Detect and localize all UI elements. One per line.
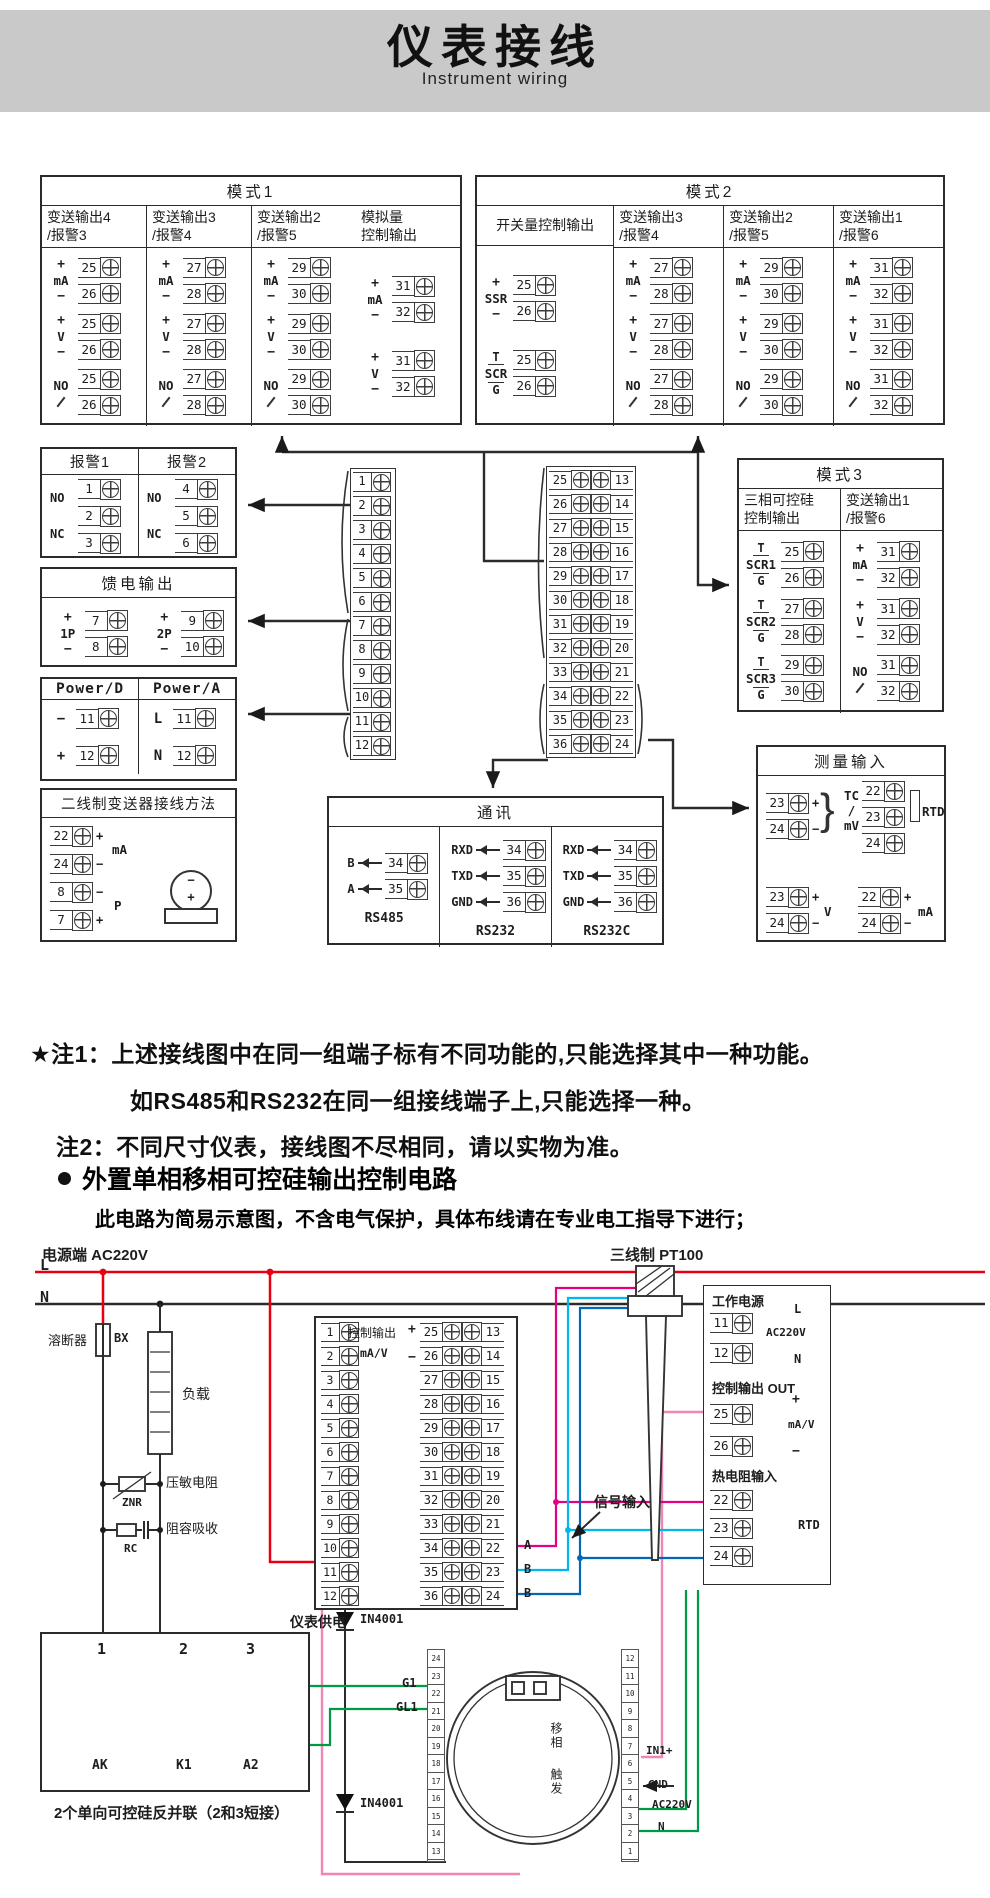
screw-icon — [788, 819, 809, 840]
screw-icon — [339, 1490, 359, 1510]
rs485-label: RS485 — [365, 911, 404, 926]
screw-icon — [462, 1418, 482, 1438]
comm-row: GND36 — [556, 889, 657, 915]
comm-row: GND36 — [445, 889, 546, 915]
screw-icon — [442, 1370, 462, 1390]
screw-icon — [732, 1518, 753, 1539]
screw-icon — [414, 376, 435, 397]
terminal: 28 — [183, 392, 226, 418]
terminal: 28 — [183, 281, 226, 307]
mode1-analog-column: 模拟量控制输出 +mA− 31 32 +V− 31 32 — [356, 206, 460, 426]
screw-icon — [339, 1394, 359, 1414]
terminal: 35 — [385, 876, 428, 902]
terminal: 32 — [877, 565, 920, 591]
terminal: 8 — [85, 634, 128, 660]
wire-tag-b2: B — [524, 1586, 531, 1600]
terminal: 11 — [321, 1560, 359, 1584]
screw-icon — [892, 313, 913, 334]
terminal: 32 — [870, 281, 913, 307]
column-header: 变送输出3/报警4 — [614, 206, 723, 248]
terminal: 28 — [650, 281, 693, 307]
screw-icon — [732, 1343, 753, 1364]
screw-icon — [414, 302, 435, 323]
screw-icon — [672, 257, 693, 278]
screw-icon — [205, 313, 226, 334]
note-2: 注2：不同尺寸仪表，接线图不尽相同，请以实物为准。 — [56, 1128, 633, 1162]
trigger-terminal: 14 — [428, 1825, 444, 1843]
screw-icon — [636, 892, 657, 913]
screw-icon — [339, 1418, 359, 1438]
screw-icon — [571, 566, 591, 586]
terminal: 25 — [513, 347, 556, 373]
screw-icon — [899, 624, 920, 645]
diode1-label: IN4001 — [360, 1612, 403, 1626]
terminal: 4 — [175, 476, 218, 503]
screw-icon — [414, 276, 435, 297]
terminal: 7+ — [50, 906, 103, 934]
ctrl-output-label: 控制输出 — [348, 1324, 396, 1341]
screw-icon — [310, 257, 331, 278]
ma-output-group: +mA− 27 28 — [151, 255, 251, 307]
relay-contact-icon — [739, 396, 748, 407]
terminal: 8 — [353, 638, 393, 662]
trigger-terminal: 15 — [428, 1808, 444, 1826]
ac220v-label: AC220V — [766, 1326, 806, 1339]
comm-box: 通讯 B34 A35 RS485 RXD34 TXD35 GND36 RS232… — [327, 796, 664, 945]
trigger-n-label: N — [658, 1820, 665, 1833]
screw-icon — [371, 472, 391, 492]
right-panel: 工作电源 11 12 L AC220V N 控制输出 OUT 25 26 + m… — [703, 1285, 831, 1585]
terminal: 29 — [288, 255, 331, 281]
measure-input-title: 测量输入 — [758, 747, 944, 776]
comm-title: 通讯 — [329, 798, 662, 827]
terminal-row: 3119 — [420, 1464, 504, 1488]
terminal: 9 — [321, 1512, 359, 1536]
trigger-terminal: 12 — [622, 1650, 638, 1668]
terminal: 23 — [862, 804, 905, 830]
screw-icon — [899, 567, 920, 588]
screw-icon — [899, 541, 920, 562]
screw-icon — [591, 590, 611, 610]
screw-icon — [803, 655, 824, 676]
brace: } — [820, 786, 835, 834]
relay-output-group: NO 29 30 — [256, 366, 356, 418]
terminal: 26 — [781, 565, 824, 591]
screw-icon — [782, 369, 803, 390]
terminal: 31 — [877, 652, 920, 678]
section2-note: 此电路为简易示意图，不含电气保护，具体布线请在专业电工指导下进行； — [95, 1203, 755, 1232]
terminal: 34 — [614, 837, 657, 863]
screw-icon — [339, 1538, 359, 1558]
feed-output-box: 馈电输出 +1P− 7 8 +2P− 9 10 — [40, 567, 237, 667]
screw-icon — [100, 506, 121, 527]
trigger-terminal: 22 — [428, 1685, 444, 1703]
mode1-column: 变送输出3/报警4 +mA− 27 28 +V− 27 28 — [147, 206, 252, 426]
screw-icon — [203, 636, 224, 657]
screw-icon — [462, 1394, 482, 1414]
trigger-terminal: 10 — [622, 1685, 638, 1703]
terminal: 30 — [760, 337, 803, 363]
varistor-label: 压敏电阻 — [166, 1472, 218, 1491]
terminal: 28 — [183, 337, 226, 363]
ma-output-group: +mA− 31 32 — [360, 273, 460, 325]
power-box: Power/DPower/A −11 +12 L11 N12 — [40, 677, 237, 781]
relay-contact-icon — [267, 396, 276, 407]
terminal: 11 — [353, 710, 393, 734]
scr-module-box — [40, 1632, 310, 1792]
terminal: 26 — [513, 373, 556, 399]
screw-icon — [339, 1442, 359, 1462]
transmitter-base — [164, 908, 218, 924]
screw-icon — [442, 1394, 462, 1414]
screw-icon — [205, 283, 226, 304]
screw-icon — [899, 655, 920, 676]
terminal: 28 — [781, 622, 824, 648]
relay-contact-icon — [856, 682, 865, 693]
column-header: 模拟量控制输出 — [356, 206, 460, 248]
terminal-row: 2715 — [549, 516, 633, 540]
terminal: 27 — [650, 311, 693, 337]
bottom-terminal-strip: 1 2 3 4 5 6 7 8 9 10 11 12 2513 2614 271… — [314, 1316, 518, 1610]
v-output-group: +V− 31 32 — [845, 596, 942, 648]
screw-icon — [899, 681, 920, 702]
feed-output-title: 馈电输出 — [42, 569, 235, 598]
screw-icon — [407, 853, 428, 874]
scr-terminal-label: A2 — [243, 1758, 259, 1773]
screw-icon — [571, 638, 591, 658]
arrow-left-icon — [476, 849, 500, 851]
trigger-terminal: 13 — [428, 1843, 444, 1861]
mode2-title: 模式2 — [477, 177, 943, 206]
transmitter-icon: −+ — [170, 870, 212, 912]
v-output-group: +V− 29 30 — [256, 311, 356, 363]
screw-icon — [571, 494, 591, 514]
scr-terminal-num: 1 — [97, 1640, 106, 1658]
screw-icon — [462, 1442, 482, 1462]
terminal: 27 — [650, 255, 693, 281]
terminal: 34 — [385, 850, 428, 876]
mode1-title: 模式1 — [42, 177, 460, 206]
terminal: 27 — [183, 366, 226, 392]
terminal-row: 3422 — [549, 684, 633, 708]
v-label: V — [824, 904, 832, 919]
screw-icon — [803, 681, 824, 702]
trigger-vlabel-1: 移相 — [548, 1722, 565, 1750]
terminal: 4 — [321, 1392, 359, 1416]
trigger-terminal: 4 — [622, 1790, 638, 1808]
scr-output-group: TSCR3G 29 30 — [743, 652, 840, 704]
screw-icon — [371, 688, 391, 708]
terminal: 11 — [173, 706, 216, 732]
trigger-vlabel-2: 触发 — [548, 1768, 565, 1796]
screw-icon — [100, 395, 121, 416]
scr-output-group: TSCRG 25 26 — [481, 347, 613, 399]
terminal: 7 — [85, 608, 128, 634]
arrow-left-icon — [587, 901, 611, 903]
relay-output-group: NO 25 26 — [46, 366, 146, 418]
screw-icon — [339, 1370, 359, 1390]
screw-icon — [72, 910, 93, 931]
mode2-box: 模式2 开关量控制输出 +SSR− 25 26 TSCRG 25 26 — [475, 175, 945, 425]
terminal-row: 3220 — [420, 1488, 504, 1512]
mode3-scr-column: 三相可控硅控制输出 TSCR1G 25 26 TSCR2G 27 28 — [739, 489, 841, 713]
screw-icon — [442, 1346, 462, 1366]
terminal: 24− — [50, 850, 103, 878]
trigger-terminal: 20 — [428, 1720, 444, 1738]
screw-icon — [339, 1562, 359, 1582]
screw-icon — [339, 1514, 359, 1534]
v-output-group: +V− 27 28 — [151, 311, 251, 363]
screw-icon — [339, 1586, 359, 1606]
arrow-left-icon — [358, 862, 382, 864]
signal-input-label: 信号输入 — [594, 1492, 650, 1512]
terminal-row: 3018 — [549, 588, 633, 612]
comm-row: RXD34 — [445, 837, 546, 863]
rs232c-group: RXD34 TXD35 GND36 RS232C — [552, 827, 662, 947]
screw-icon — [892, 339, 913, 360]
trigger-ac-label: AC220V — [652, 1798, 692, 1811]
screw-icon — [100, 479, 121, 500]
ma-label: mA — [112, 842, 127, 857]
terminal: 31 — [877, 539, 920, 565]
ssr-output-group: +SSR− 25 26 — [481, 272, 613, 324]
rs232-label: RS232 — [476, 924, 515, 939]
screw-icon — [571, 470, 591, 490]
terminal: 32 — [877, 678, 920, 704]
trigger-terminal: 23 — [428, 1668, 444, 1686]
terminal-row: 3018 — [420, 1440, 504, 1464]
terminal: 3 — [353, 518, 393, 542]
screw-icon — [525, 892, 546, 913]
rc-label: 阻容吸收 — [166, 1518, 218, 1537]
wire-tag-a: A — [524, 1538, 531, 1552]
terminal: 25 — [78, 366, 121, 392]
screw-icon — [414, 350, 435, 371]
terminal: 6 — [321, 1440, 359, 1464]
screw-icon — [205, 257, 226, 278]
screw-icon — [462, 1514, 482, 1534]
screw-icon — [672, 283, 693, 304]
relay-contact-icon — [629, 396, 638, 407]
v-output-group: +V− 29 30 — [728, 311, 833, 363]
screw-icon — [571, 734, 591, 754]
terminal-row: 2513 — [420, 1320, 504, 1344]
screw-icon — [462, 1370, 482, 1390]
terminal: 23+ — [766, 790, 819, 816]
terminal: 30 — [760, 281, 803, 307]
arrow-left-icon — [587, 875, 611, 877]
alarm2-group: NONC 4 5 6 — [139, 475, 235, 557]
terminal: 27 — [183, 311, 226, 337]
terminal: 36 — [614, 889, 657, 915]
screw-icon — [462, 1322, 482, 1342]
mode1-column: 变送输出4/报警3 +mA− 25 26 +V− 25 26 — [42, 206, 147, 426]
terminal: 3 — [321, 1368, 359, 1392]
diode2-label: IN4001 — [360, 1796, 403, 1810]
screw-icon — [782, 257, 803, 278]
power-d-title: Power/D — [42, 679, 139, 699]
terminal: 10 — [181, 634, 224, 660]
mode3-transmit-column: 变送输出1/报警6 +mA− 31 32 +V− 31 32 — [841, 489, 942, 713]
trigger-terminal: 6 — [622, 1755, 638, 1773]
screw-icon — [892, 395, 913, 416]
terminal: 7 — [321, 1464, 359, 1488]
screw-icon — [98, 708, 119, 729]
screw-icon — [571, 686, 591, 706]
screw-icon — [525, 840, 546, 861]
relay-output-group: NO 31 32 — [838, 366, 943, 418]
terminal: 35 — [503, 863, 546, 889]
screw-icon — [371, 616, 391, 636]
plus-sign: + — [408, 1322, 416, 1337]
terminal: 30 — [760, 392, 803, 418]
note-1: ★注1：上述接线图中在同一组端子标有不同功能的,只能选择其中一种功能。 — [30, 1035, 823, 1069]
column-header: 变送输出2/报警5 — [724, 206, 833, 248]
terminal: 32 — [870, 392, 913, 418]
comm-row: A35 — [341, 876, 428, 902]
terminal: 4 — [353, 542, 393, 566]
terminal: 24− — [766, 816, 819, 842]
alarm2-title: 报警2 — [139, 449, 235, 474]
terminal-row: 3422 — [420, 1536, 504, 1560]
screw-icon — [591, 662, 611, 682]
arrow-left-icon — [358, 888, 382, 890]
screw-icon — [72, 854, 93, 875]
terminal: 3 — [78, 530, 121, 557]
terminal: 36 — [503, 889, 546, 915]
screw-icon — [782, 395, 803, 416]
feed-group: +2P− 9 10 — [149, 608, 224, 660]
v-output-group: +V− 27 28 — [618, 311, 723, 363]
screw-icon — [371, 520, 391, 540]
screw-icon — [72, 882, 93, 903]
trigger-terminal: 19 — [428, 1738, 444, 1756]
ma-output-group: +mA− 31 32 — [845, 539, 942, 591]
power-a-group: L11 N12 — [139, 700, 235, 774]
scr-terminal-num: 3 — [246, 1640, 255, 1658]
terminal: 6 — [353, 590, 393, 614]
screw-icon — [591, 734, 611, 754]
terminal: 32 — [877, 622, 920, 648]
screw-icon — [803, 624, 824, 645]
screw-icon — [371, 592, 391, 612]
screw-icon — [407, 879, 428, 900]
screw-icon — [442, 1490, 462, 1510]
ma-output-group: +mA− 29 30 — [256, 255, 356, 307]
plus-sign: + — [792, 1392, 800, 1407]
screw-icon — [591, 638, 611, 658]
terminal-row: 2917 — [420, 1416, 504, 1440]
terminal: 7 — [353, 614, 393, 638]
mode3-box: 模式3 三相可控硅控制输出 TSCR1G 25 26 TSCR2G 27 28 — [737, 458, 944, 712]
screw-icon — [535, 275, 556, 296]
ma-label: mA — [918, 904, 933, 919]
relay-contact-icon — [57, 396, 66, 407]
screw-icon — [803, 567, 824, 588]
ctrl-out-title: 控制输出 OUT — [712, 1378, 795, 1397]
terminal-row: 2614 — [420, 1344, 504, 1368]
terminal: 29 — [760, 255, 803, 281]
terminal: 5 — [353, 566, 393, 590]
screw-icon — [636, 840, 657, 861]
trigger-terminal: 24 — [428, 1650, 444, 1668]
screw-icon — [72, 826, 93, 847]
screw-icon — [195, 708, 216, 729]
terminal: 5 — [321, 1416, 359, 1440]
trigger-terminal: 17 — [428, 1773, 444, 1791]
screw-icon — [782, 313, 803, 334]
terminal: 25 — [513, 272, 556, 298]
screw-icon — [535, 376, 556, 397]
terminal: 27 — [183, 255, 226, 281]
screw-icon — [197, 506, 218, 527]
mode2-column: 变送输出3/报警4 +mA− 27 28 +V− 27 28 — [614, 206, 724, 426]
relay-output-group: NO 31 32 — [845, 652, 942, 704]
ma-output-group: +mA− 25 26 — [46, 255, 146, 307]
screw-icon — [339, 1466, 359, 1486]
v-output-group: +V− 31 32 — [838, 311, 943, 363]
p-label: P — [114, 898, 122, 913]
terminal: 26 — [78, 281, 121, 307]
mode3-title: 模式3 — [739, 460, 942, 489]
screw-icon — [205, 369, 226, 390]
terminal: 29 — [288, 311, 331, 337]
rs485-group: B34 A35 RS485 — [329, 827, 440, 947]
trigger-terminal: 11 — [622, 1668, 638, 1686]
arrow-left-icon — [476, 901, 500, 903]
screw-icon — [442, 1538, 462, 1558]
alarm1-title: 报警1 — [42, 449, 139, 474]
column-header: 三相可控硅控制输出 — [739, 489, 840, 531]
fuse-label: 溶断器 — [48, 1330, 87, 1349]
terminal: 30 — [288, 392, 331, 418]
terminal-row: 3624 — [549, 732, 633, 756]
page-subtitle: Instrument wiring — [0, 69, 990, 89]
screw-icon — [371, 496, 391, 516]
screw-icon — [591, 542, 611, 562]
screw-icon — [197, 479, 218, 500]
terminal: 35 — [614, 863, 657, 889]
terminal-row: 3321 — [420, 1512, 504, 1536]
screw-icon — [788, 887, 809, 908]
screw-icon — [591, 518, 611, 538]
arrow-left-icon — [587, 849, 611, 851]
two-wire-title: 二线制变送器接线方法 — [42, 790, 235, 818]
terminal: 31 — [870, 255, 913, 281]
mode2-column: 变送输出1/报警6 +mA− 31 32 +V− 31 32 — [834, 206, 943, 426]
mav-label: mA/V — [788, 1418, 815, 1431]
screw-icon — [371, 544, 391, 564]
comm-row: TXD35 — [445, 863, 546, 889]
terminal: 26 — [78, 337, 121, 363]
column-header: 变送输出3/报警4 — [147, 206, 251, 248]
screw-icon — [636, 866, 657, 887]
screw-icon — [197, 533, 218, 554]
feed-group: +1P− 7 8 — [53, 608, 128, 660]
screw-icon — [100, 283, 121, 304]
trigger-terminal: 16 — [428, 1790, 444, 1808]
mav-label: mA/V — [360, 1346, 388, 1360]
screw-icon — [442, 1466, 462, 1486]
terminal: 9 — [353, 662, 393, 686]
column-header: 变送输出4/报警3 — [42, 206, 146, 248]
terminal: 22 — [862, 778, 905, 804]
terminal: 23+ — [766, 884, 819, 910]
alarm1-group: NONC 1 2 3 — [42, 475, 139, 557]
terminal: 11 — [76, 706, 119, 732]
terminal: 12 — [321, 1584, 359, 1608]
terminal: 27 — [650, 366, 693, 392]
